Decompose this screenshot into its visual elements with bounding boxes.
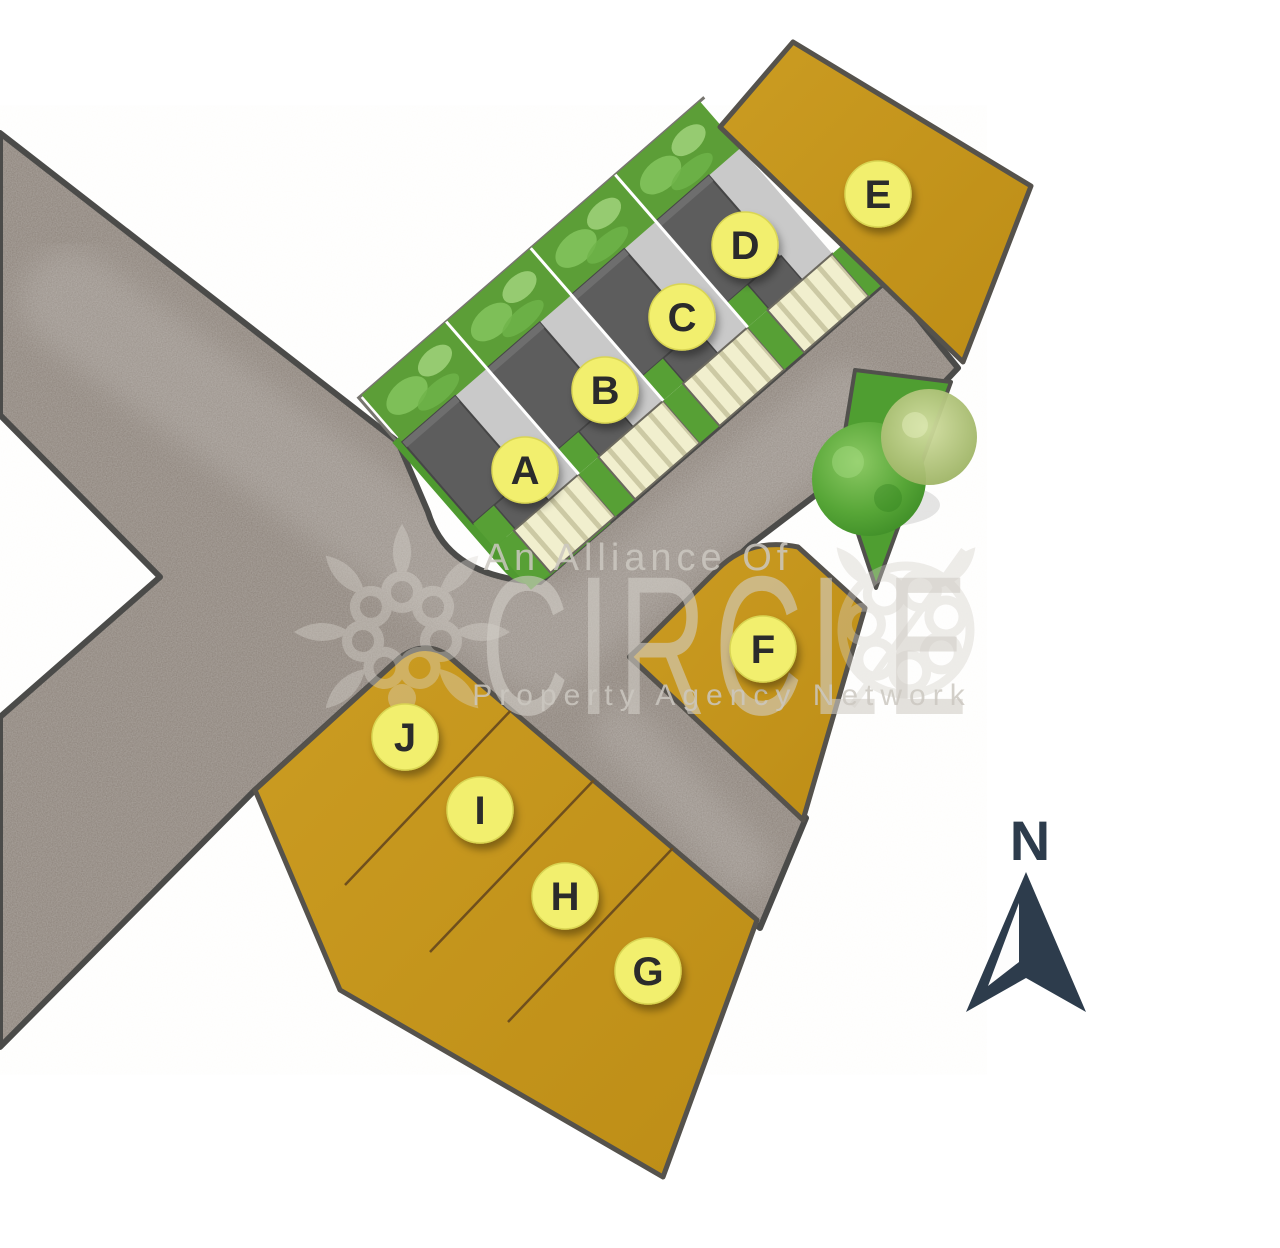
plot-marker-d: D <box>712 212 778 278</box>
watermark-line2: Property Agency Network <box>472 679 971 712</box>
plot-marker-letter: I <box>474 789 485 833</box>
compass: N <box>966 809 1086 1012</box>
compass-north-label: N <box>1010 809 1050 872</box>
plot-marker-h: H <box>532 863 598 929</box>
plot-marker-b: B <box>572 357 638 423</box>
site-plan-canvas: An Alliance Of CIRCLE Property Agency Ne… <box>0 0 1280 1248</box>
plot-marker-c: C <box>649 284 715 350</box>
plot-marker-i: I <box>447 777 513 843</box>
plot-marker-letter: A <box>511 449 540 493</box>
plot-marker-letter: B <box>591 369 620 413</box>
plot-marker-g: G <box>615 938 681 1004</box>
north-arrow-icon <box>966 872 1086 1012</box>
plot-marker-letter: G <box>632 950 663 994</box>
site-plan-image: An Alliance Of CIRCLE Property Agency Ne… <box>0 0 1280 1248</box>
plot-marker-letter: J <box>394 716 416 760</box>
plot-marker-letter: F <box>751 628 775 672</box>
plot-marker-e: E <box>845 161 911 227</box>
plot-marker-j: J <box>372 704 438 770</box>
plot-marker-letter: D <box>731 224 760 268</box>
watermark-brand: CIRCLE <box>481 535 976 756</box>
plot-marker-letter: E <box>865 173 892 217</box>
plot-marker-letter: H <box>551 875 580 919</box>
plot-marker-letter: C <box>668 296 697 340</box>
plot-marker-f: F <box>730 616 796 682</box>
plot-marker-a: A <box>492 437 558 503</box>
tree-icon <box>881 389 977 485</box>
